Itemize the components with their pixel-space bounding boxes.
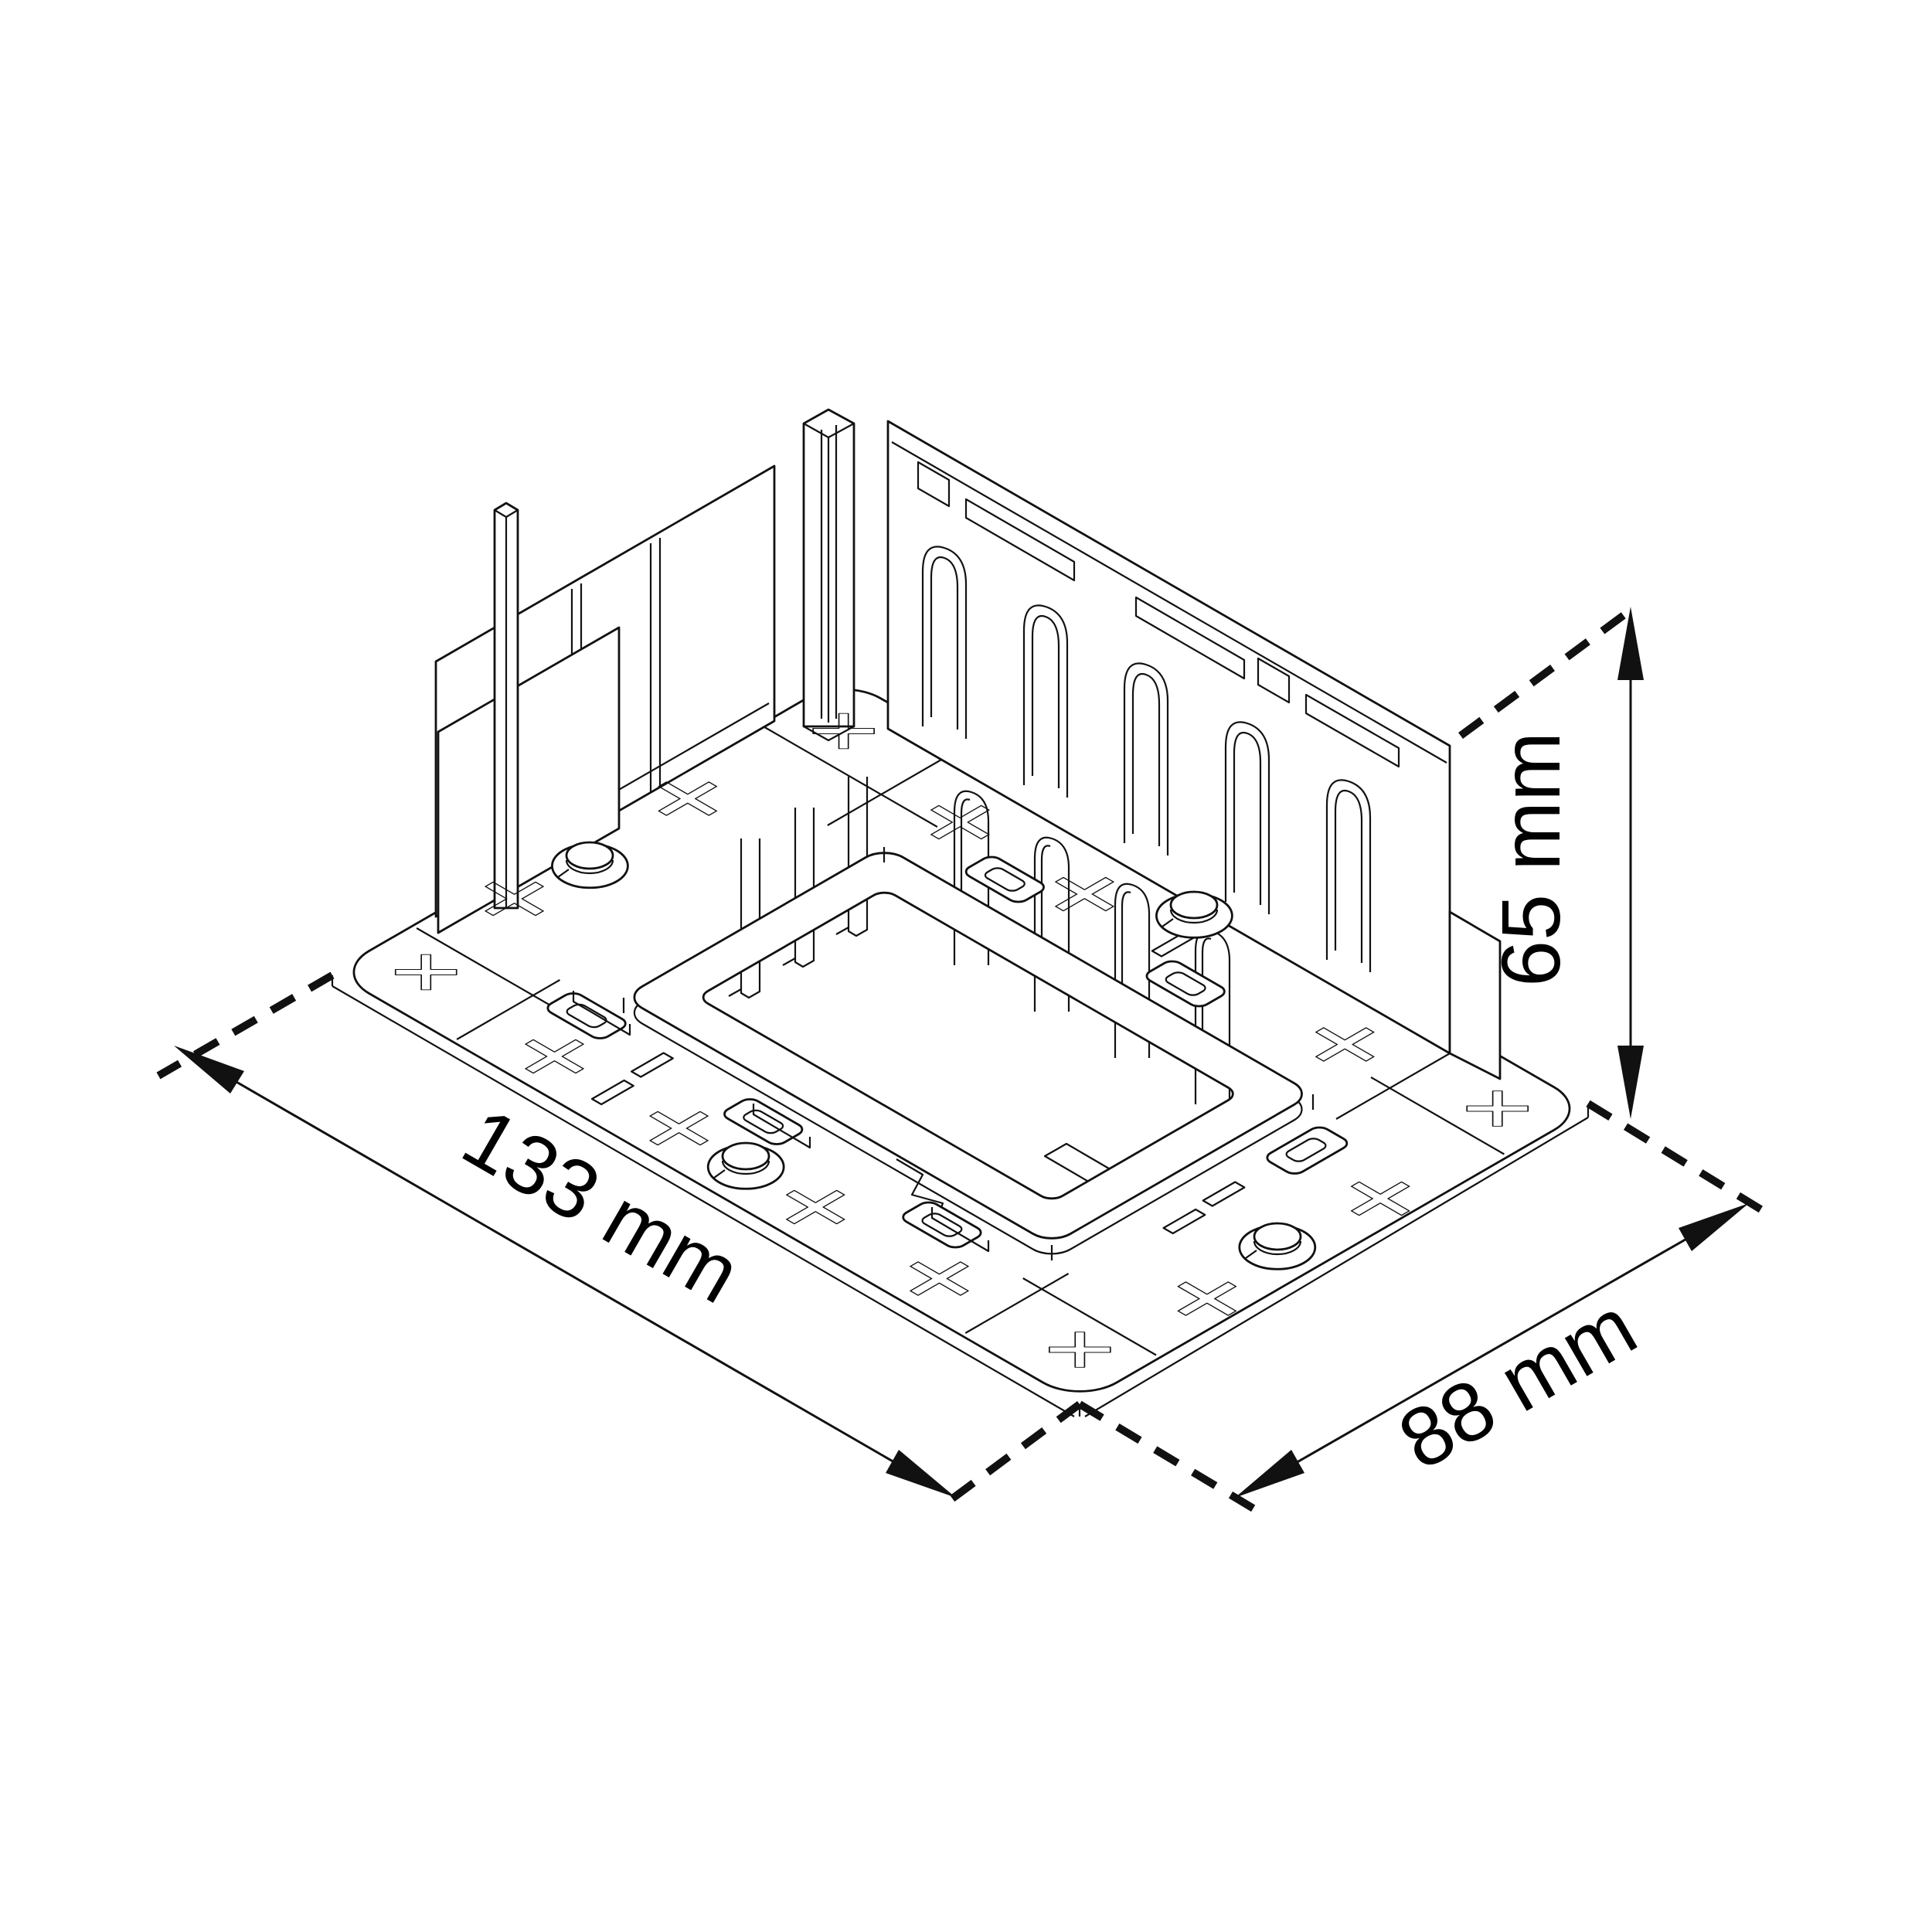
extension-line-depth-left xyxy=(1080,1404,1253,1509)
extension-line-depth-right xyxy=(1588,1104,1770,1215)
arrowhead-width-right xyxy=(886,1450,956,1498)
technical-drawing-canvas: 133 mm 88 mm 65 mm xyxy=(0,0,1932,1932)
arrowhead-depth-left xyxy=(1235,1450,1304,1498)
extension-line-width-right xyxy=(939,1404,1080,1509)
drawing-page: 133 mm 88 mm 65 mm xyxy=(0,0,1932,1932)
dimension-label-depth: 88 mm xyxy=(1383,1279,1651,1488)
dimension-label-height: 65 mm xyxy=(1484,732,1577,987)
arrowhead-depth-right xyxy=(1679,1203,1749,1251)
extension-line-height-top xyxy=(1461,609,1632,736)
arrowhead-height-bottom xyxy=(1617,1046,1644,1119)
arrowhead-width-left xyxy=(174,1046,244,1094)
dimension-height: 65 mm xyxy=(1484,607,1644,1119)
corner-post xyxy=(804,410,854,740)
extension-line-width-left xyxy=(158,975,332,1076)
